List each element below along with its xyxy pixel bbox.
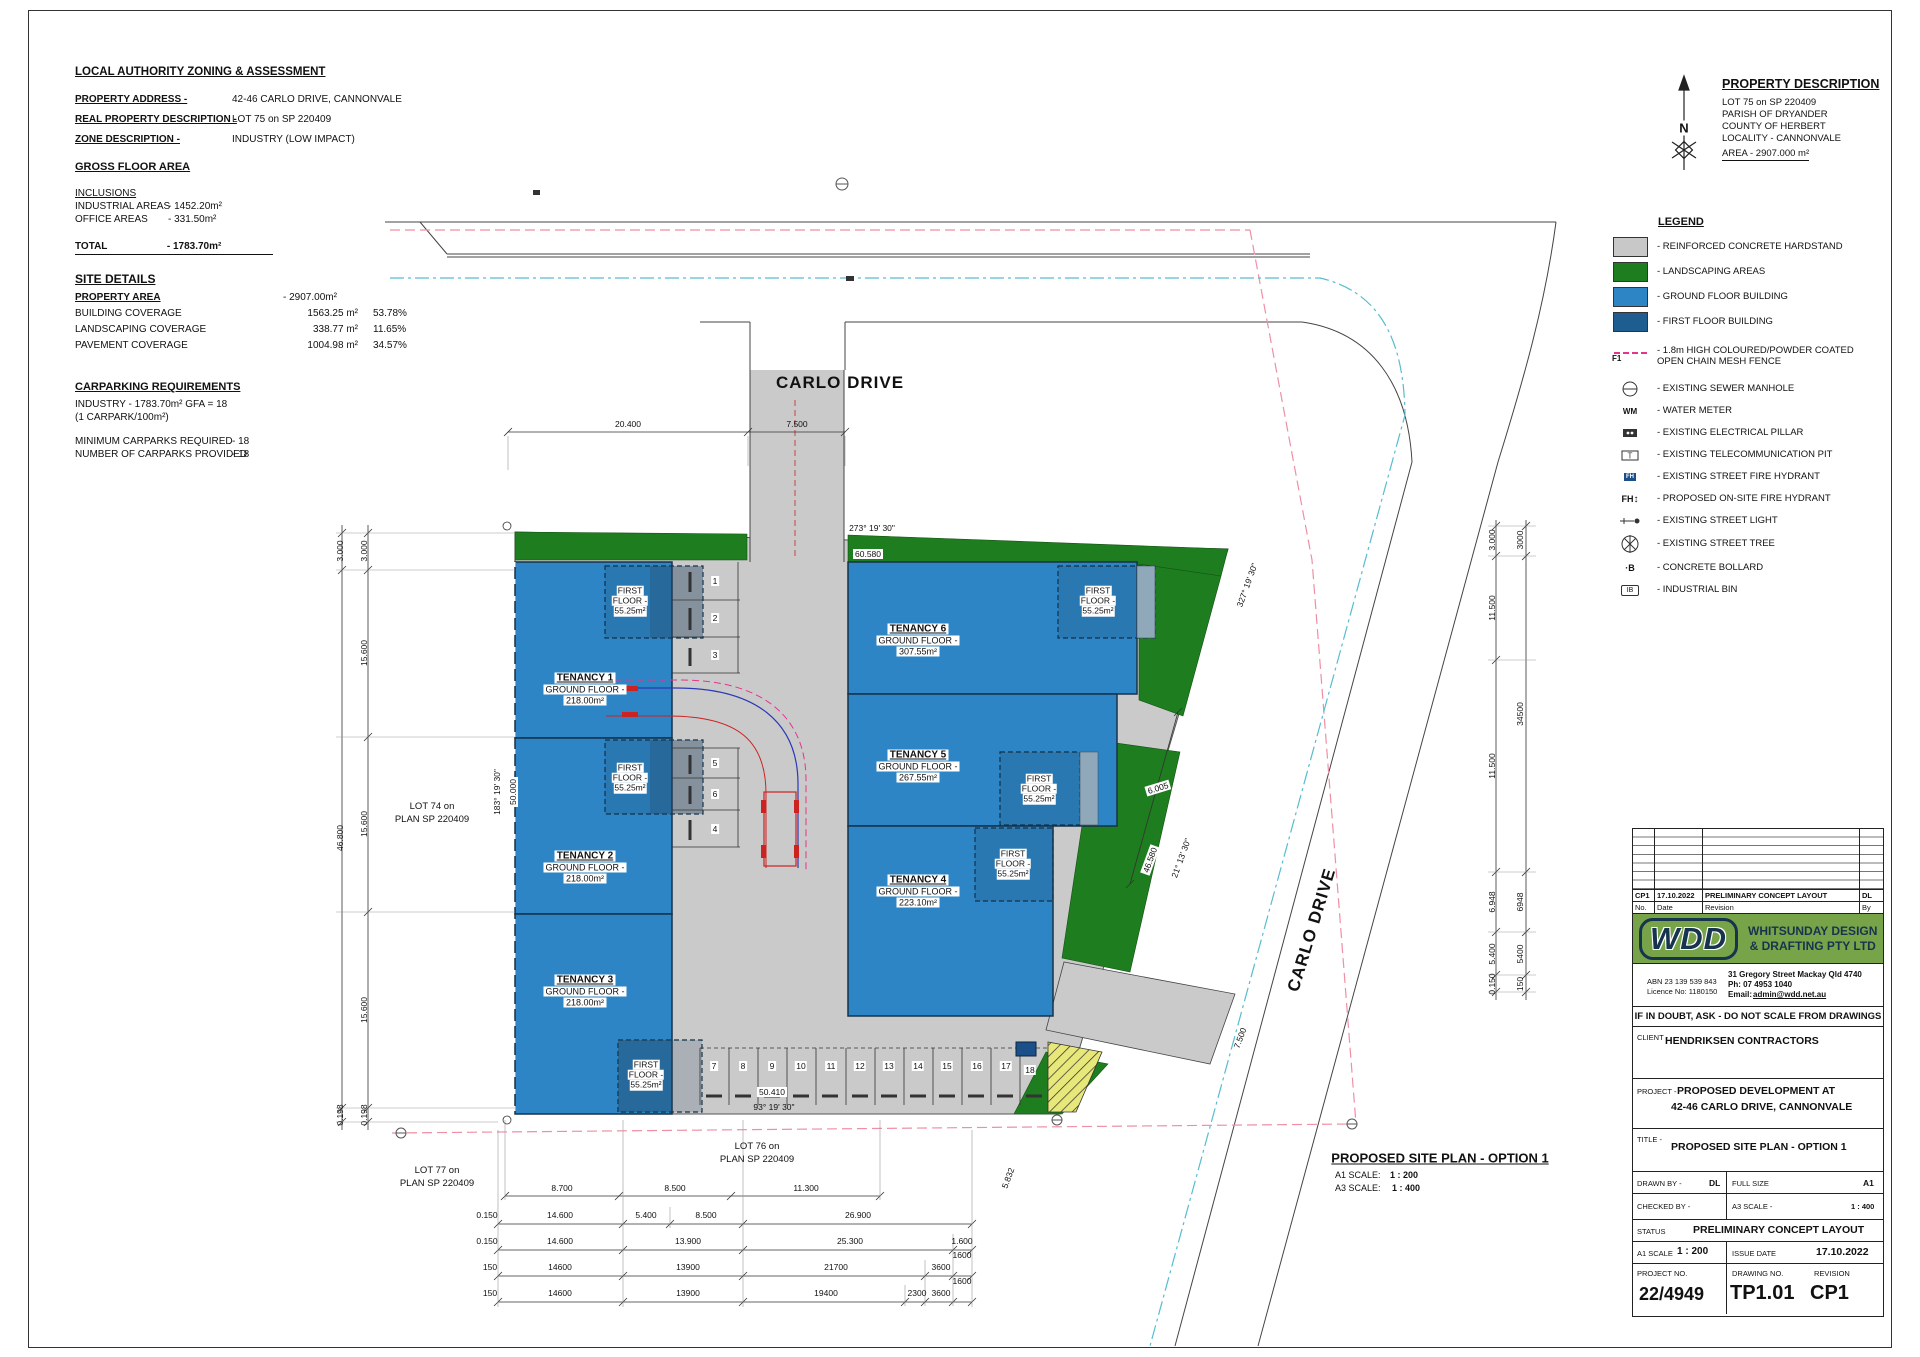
status-label: STATUS	[1637, 1227, 1665, 1236]
drawing-sheet: LOCAL AUTHORITY ZONING & ASSESSMENT PROP…	[0, 0, 1920, 1357]
dim-label: 15.600	[359, 811, 369, 837]
dim-label: 15.600	[359, 997, 369, 1023]
carpark-number: 6	[711, 789, 719, 799]
ff-area: 55.25m²	[1022, 794, 1055, 804]
tenancy-area: 307.55m²	[897, 647, 939, 657]
dim-label: 5.400	[635, 1210, 656, 1220]
pd-title: PROPERTY DESCRIPTION	[1722, 77, 1879, 91]
tenancy-name: TENANCY 6	[888, 624, 949, 635]
pd-line: LOCALITY - CANNONVALE	[1722, 133, 1841, 144]
panel-title: LOCAL AUTHORITY ZONING & ASSESSMENT	[75, 66, 325, 78]
telecommunication-pit-icon: T	[1612, 450, 1648, 461]
legend-item: - EXISTING ELECTRICAL PILLAR	[1612, 422, 1803, 444]
legend-item: IB - INDUSTRIAL BIN	[1612, 579, 1737, 601]
legend-label: - CONCRETE BOLLARD	[1657, 563, 1763, 574]
ff-l2: FLOOR -	[995, 859, 1031, 869]
sd-pct: 34.57%	[373, 340, 407, 351]
dim-label: 1600	[953, 1276, 972, 1286]
client-label: CLIENT -	[1637, 1033, 1668, 1042]
legend-item: FH - EXISTING STREET FIRE HYDRANT	[1612, 466, 1820, 488]
tenancy-4-label: TENANCY 4 GROUND FLOOR - 223.10m²	[876, 875, 959, 908]
legend-item: - EXISTING STREET LIGHT	[1612, 510, 1778, 532]
dim-label: 25.300	[837, 1236, 863, 1246]
rev-no: CP1	[1633, 890, 1654, 901]
wm-glyph: WM	[1623, 407, 1637, 416]
dim-label: 0.198	[335, 1104, 345, 1125]
sd-pct: 53.78%	[373, 308, 407, 319]
tenancy-floor: GROUND FLOOR -	[876, 636, 959, 646]
a1-scale-label: A1 SCALE	[1637, 1249, 1673, 1258]
first-floor-swatch-icon	[1612, 312, 1648, 332]
dim-label: 1600	[953, 1250, 972, 1260]
area-label: PROPERTY AREA	[75, 292, 161, 303]
scale-issue-row: A1 SCALE 1 : 200 ISSUE DATE 17.10.2022	[1633, 1241, 1883, 1263]
accessible-bay-icon	[1016, 1042, 1036, 1056]
lot-line: PLAN SP 220409	[720, 1154, 794, 1167]
bin-glyph: IB	[1621, 585, 1640, 596]
title-label: TITLE -	[1637, 1135, 1662, 1144]
company-details: ABN 23 139 539 843 Licence No: 1180150 3…	[1633, 963, 1883, 1006]
dim-label: 46.800	[335, 825, 345, 851]
pd-line: LOT 75 on SP 220409	[1722, 97, 1816, 108]
carpark-number: 11	[825, 1061, 837, 1071]
licence: Licence No: 1180150	[1647, 987, 1717, 996]
ff-l1: FIRST	[617, 586, 644, 596]
drawn-label: DRAWN BY -	[1637, 1179, 1682, 1188]
sewer-manhole-icon	[1612, 380, 1648, 398]
address: 31 Gregory Street Mackay Qld 4740	[1728, 970, 1862, 979]
row-label: REAL PROPERTY DESCRIPTION -	[75, 114, 237, 125]
rev-h-desc: Revision	[1702, 902, 1859, 913]
first-floor-label: FIRSTFLOOR -55.25m²	[1080, 586, 1116, 617]
dim-label: 0.150	[476, 1210, 497, 1220]
dim-label: 15.600	[359, 640, 369, 666]
carpark-number: 14	[912, 1061, 924, 1071]
dim-label: 6948	[1515, 893, 1525, 912]
carpark-number: 4	[711, 824, 719, 834]
sd-value: 1563.25 m²	[295, 308, 358, 319]
dim-label: 34500	[1515, 702, 1525, 726]
total-label: TOTAL	[75, 241, 107, 252]
dim-label: 3600	[932, 1262, 951, 1272]
landscaping-swatch-icon	[1612, 262, 1648, 282]
project-line1: PROPOSED DEVELOPMENT AT	[1677, 1085, 1835, 1097]
company-line2: & DRAFTING PTY LTD	[1748, 939, 1877, 954]
revision-empty-rows	[1633, 829, 1883, 889]
carpark-number: 15	[941, 1061, 953, 1071]
pd-line: COUNTY OF HERBERT	[1722, 121, 1826, 132]
rev-h-no: No.	[1633, 902, 1654, 913]
title-value: PROPOSED SITE PLAN - OPTION 1	[1671, 1141, 1847, 1153]
industrial-bin-icon: IB	[1612, 585, 1648, 596]
street-light-icon	[1612, 516, 1648, 526]
dim-label: 6.948	[1487, 891, 1497, 912]
phone: Ph: 07 4953 1040	[1728, 980, 1792, 989]
client-row: CLIENT - HENDRIKSEN CONTRACTORS	[1633, 1026, 1883, 1078]
sd-value: 338.77 m²	[295, 324, 358, 335]
lot-line: LOT 77 on	[415, 1165, 460, 1178]
tenancy-floor: GROUND FLOOR -	[876, 762, 959, 772]
issue-label: ISSUE DATE	[1732, 1249, 1776, 1258]
fh2-glyph: FH	[1622, 494, 1634, 504]
svg-text:T: T	[1628, 451, 1633, 460]
sd-label: LANDSCAPING COVERAGE	[75, 324, 206, 335]
first-floor-label: FIRSTFLOOR -55.25m²	[995, 849, 1031, 880]
legend-item: - EXISTING SEWER MANHOLE	[1612, 378, 1794, 400]
pd-area: AREA - 2907.000 m²	[1722, 148, 1809, 161]
dim-label: 11.500	[1487, 595, 1497, 620]
legend-item: - FIRST FLOOR BUILDING	[1612, 311, 1773, 333]
legend-item: - LANDSCAPING AREAS	[1612, 261, 1765, 283]
dim-label: 19400	[814, 1288, 838, 1298]
fh-glyph: FH	[1624, 473, 1636, 481]
revision-header: No. Date Revision By	[1633, 901, 1883, 913]
first-floor-label: FIRSTFLOOR -55.25m²	[1021, 774, 1057, 805]
dim-label: 5.400	[1487, 943, 1497, 964]
a3-scale-label: A3 SCALE -	[1732, 1202, 1772, 1211]
disclaimer-row: IF IN DOUBT, ASK - DO NOT SCALE FROM DRA…	[1633, 1006, 1883, 1026]
tenancy-5-label: TENANCY 5 GROUND FLOOR - 267.55m²	[876, 750, 959, 783]
dim-label: 11.300	[793, 1183, 818, 1193]
issue-value: 17.10.2022	[1816, 1246, 1869, 1258]
tenancy-name: TENANCY 4	[888, 875, 949, 886]
sd-pct: 11.65%	[373, 324, 406, 335]
fullsize-label: FULL SIZE	[1732, 1179, 1769, 1188]
tenancy-floor: GROUND FLOOR -	[543, 685, 626, 695]
carpark-number: 1	[711, 576, 719, 586]
first-floor-label: FIRSTFLOOR -55.25m²	[628, 1060, 664, 1091]
tenancy-area: 218.00m²	[564, 998, 606, 1008]
boundary-length-bottom: 50.410	[757, 1087, 787, 1097]
sd-label: BUILDING COVERAGE	[75, 308, 182, 319]
dim-label: 3.000	[359, 540, 369, 561]
dim-label: 150	[483, 1262, 497, 1272]
abn: ABN 23 139 539 843	[1647, 977, 1717, 986]
row-label: ZONE DESCRIPTION -	[75, 134, 180, 145]
status-row: STATUS PRELIMINARY CONCEPT LAYOUT	[1633, 1219, 1883, 1241]
row-label: PROPERTY ADDRESS -	[75, 94, 187, 105]
cp-line: INDUSTRY - 1783.70m² GFA = 18	[75, 399, 227, 410]
legend-label: - REINFORCED CONCRETE HARDSTAND	[1657, 242, 1843, 253]
project-label: PROJECT -	[1637, 1087, 1676, 1096]
company-banner: WDD WHITSUNDAY DESIGN & DRAFTING PTY LTD	[1633, 913, 1883, 963]
dim-label: 3.000	[1487, 529, 1497, 550]
drawn-row: DRAWN BY - DL FULL SIZE A1	[1633, 1171, 1883, 1193]
ff-l1: FIRST	[1026, 774, 1053, 784]
tenancy-area: 218.00m²	[564, 696, 606, 706]
ff-l1: FIRST	[617, 763, 644, 773]
lot-77-label: LOT 77 onPLAN SP 220409	[400, 1165, 474, 1191]
dim-label: 3.000	[335, 540, 345, 561]
email: admin@wdd.net.au	[1753, 990, 1826, 999]
carpark-number: 3	[711, 650, 719, 660]
ff-l1: FIRST	[1000, 849, 1027, 859]
gfa-title: GROSS FLOOR AREA	[75, 161, 190, 173]
company-line1: WHITSUNDAY DESIGN	[1748, 924, 1877, 939]
legend-label: - EXISTING ELECTRICAL PILLAR	[1657, 428, 1803, 439]
gfa-value: - 331.50m²	[168, 214, 216, 225]
ground-floor-swatch-icon	[1612, 287, 1648, 307]
lot-line: PLAN SP 220409	[395, 814, 469, 827]
carparking-title: CARPARKING REQUIREMENTS	[75, 381, 240, 393]
dim-label: 13.900	[675, 1236, 701, 1246]
ff-l2: FLOOR -	[612, 773, 648, 783]
dwgno-label: DRAWING NO.	[1732, 1269, 1783, 1278]
ff-area: 55.25m²	[629, 1080, 662, 1090]
legend-label: - GROUND FLOOR BUILDING	[1657, 292, 1788, 303]
ff-area: 55.25m²	[613, 783, 646, 793]
first-floor-label: FIRSTFLOOR -55.25m²	[612, 763, 648, 794]
legend-item: - GROUND FLOOR BUILDING	[1612, 286, 1788, 308]
bollard-glyph: ·B	[1625, 563, 1635, 573]
street-tree-icon	[1612, 534, 1648, 554]
carpark-number: 12	[854, 1061, 866, 1071]
lot-line: PLAN SP 220409	[400, 1178, 474, 1191]
row-value: LOT 75 on SP 220409	[232, 114, 331, 125]
onsite-fire-hydrant-icon: FH↕	[1612, 494, 1648, 505]
legend-item: F1 - 1.8m HIGH COLOURED/POWDER COATED OP…	[1612, 342, 1882, 372]
tenancy-name: TENANCY 2	[555, 851, 616, 862]
sd-label: PAVEMENT COVERAGE	[75, 340, 188, 351]
carpark-number: 2	[711, 613, 719, 623]
tenancy-6-label: TENANCY 6 GROUND FLOOR - 307.55m²	[876, 624, 959, 657]
carpark-number: 9	[768, 1061, 776, 1071]
tenancy-floor: GROUND FLOOR -	[543, 863, 626, 873]
rev-value: CP1	[1810, 1282, 1849, 1305]
legend-label: - EXISTING TELECOMMUNICATION PIT	[1657, 450, 1832, 461]
caption-a1-value: 1 : 200	[1390, 1170, 1418, 1180]
legend-label: - EXISTING STREET LIGHT	[1657, 516, 1778, 527]
legend-label: - EXISTING SEWER MANHOLE	[1657, 384, 1794, 395]
legend-label: - PROPOSED ON-SITE FIRE HYDRANT	[1657, 494, 1831, 505]
legend-panel: LEGEND - REINFORCED CONCRETE HARDSTAND -…	[1612, 212, 1888, 604]
carpark-number: 5	[711, 758, 719, 768]
dim-label: 8.700	[551, 1183, 572, 1193]
checked-row: CHECKED BY - A3 SCALE - 1 : 400	[1633, 1193, 1883, 1219]
gfa-label: OFFICE AREAS	[75, 214, 148, 225]
fullsize-value: A1	[1863, 1178, 1874, 1188]
total-value: - 1783.70m²	[167, 241, 221, 252]
company-name: WHITSUNDAY DESIGN & DRAFTING PTY LTD	[1748, 924, 1877, 954]
rev-label: REVISION	[1814, 1269, 1850, 1278]
dim-label: 3000	[1515, 531, 1525, 550]
tenancy-name: TENANCY 1	[555, 673, 616, 684]
legend-item: WM - WATER METER	[1612, 400, 1732, 422]
plan-caption-title: PROPOSED SITE PLAN - OPTION 1	[1331, 1151, 1548, 1166]
ff-l1: FIRST	[1085, 586, 1112, 596]
carpark-number: 16	[971, 1061, 983, 1071]
row-value: 42-46 CARLO DRIVE, CANNONVALE	[232, 94, 402, 105]
first-floor-label: FIRSTFLOOR -55.25m²	[612, 586, 648, 617]
dim-label: 21700	[824, 1262, 848, 1272]
disclaimer: IF IN DOUBT, ASK - DO NOT SCALE FROM DRA…	[1635, 1011, 1882, 1022]
legend-label: - FIRST FLOOR BUILDING	[1657, 317, 1773, 328]
legend-label: - INDUSTRIAL BIN	[1657, 585, 1737, 596]
dwgno-value: TP1.01	[1730, 1282, 1794, 1305]
dim-label: 8.500	[695, 1210, 716, 1220]
tenancy-3-label: TENANCY 3 GROUND FLOOR - 218.00m²	[543, 975, 626, 1008]
bearing-left: 183° 19' 30"	[492, 769, 502, 815]
caption-a1-label: A1 SCALE:	[1335, 1170, 1381, 1180]
dim-label: 14.600	[547, 1210, 573, 1220]
rev-by: DL	[1859, 890, 1883, 901]
checked-label: CHECKED BY -	[1637, 1202, 1690, 1211]
road-name-top: CARLO DRIVE	[776, 373, 904, 393]
pd-line: PARISH OF DRYANDER	[1722, 109, 1828, 120]
tenancy-name: TENANCY 5	[888, 750, 949, 761]
electrical-pillar-icon	[1612, 428, 1648, 438]
bearing-bottom: 93° 19' 30"	[753, 1102, 794, 1112]
ff-area: 55.25m²	[996, 869, 1029, 879]
ff-l2: FLOOR -	[628, 1070, 664, 1080]
client-value: HENDRIKSEN CONTRACTORS	[1665, 1035, 1819, 1047]
dim-label: 13900	[676, 1262, 700, 1272]
status-value: PRELIMINARY CONCEPT LAYOUT	[1693, 1224, 1864, 1236]
cp-value: - 18	[232, 436, 249, 447]
street-fire-hydrant-icon: FH	[1612, 473, 1648, 481]
dim-label: 14.600	[547, 1236, 573, 1246]
projno-value: 22/4949	[1639, 1284, 1704, 1305]
a3-scale-value: 1 : 400	[1851, 1202, 1874, 1211]
cp-line: (1 CARPARK/100m²)	[75, 412, 169, 423]
dim-label: 0.198	[359, 1104, 369, 1125]
dim-label: 0.150	[476, 1236, 497, 1246]
boundary-length-left: 50.000	[508, 777, 518, 807]
legend-item: - REINFORCED CONCRETE HARDSTAND	[1612, 236, 1843, 258]
dim-label: 3600	[932, 1288, 951, 1298]
hardstand-swatch-icon	[1612, 237, 1648, 257]
concrete-bollard-icon: ·B	[1612, 563, 1648, 573]
legend-label: - LANDSCAPING AREAS	[1657, 267, 1765, 278]
project-line2: 42-46 CARLO DRIVE, CANNONVALE	[1671, 1101, 1852, 1113]
row-value: INDUSTRY (LOW IMPACT)	[232, 134, 355, 145]
rev-date: 17.10.2022	[1654, 890, 1702, 901]
ff-l2: FLOOR -	[1080, 596, 1116, 606]
carpark-number: 10	[795, 1061, 807, 1071]
dim-label: 7.500	[786, 419, 807, 429]
cp-value: - 18	[232, 449, 249, 460]
rev-h-by: By	[1859, 902, 1883, 913]
gfa-value: - 1452.20m²	[168, 201, 222, 212]
dim-label: 14600	[548, 1288, 572, 1298]
fence-glyph: F1	[1612, 354, 1621, 363]
cp-label: MINIMUM CARPARKS REQUIRED	[75, 436, 233, 447]
ff-area: 55.25m²	[613, 606, 646, 616]
project-number-row: PROJECT NO. 22/4949 DRAWING NO. REVISION…	[1633, 1263, 1883, 1314]
projno-label: PROJECT NO.	[1637, 1269, 1687, 1278]
sd-value: 1004.98 m²	[295, 340, 358, 351]
lot-line: LOT 76 on	[735, 1141, 780, 1154]
legend-item: ·B - CONCRETE BOLLARD	[1612, 557, 1763, 579]
dim-label: 150	[483, 1288, 497, 1298]
title-block: CP1 17.10.2022 PRELIMINARY CONCEPT LAYOU…	[1632, 828, 1884, 1317]
legend-label: - EXISTING STREET FIRE HYDRANT	[1657, 472, 1820, 483]
inclusions-label: INCLUSIONS	[75, 188, 136, 199]
carpark-number: 17	[1000, 1061, 1012, 1071]
rev-h-date: Date	[1654, 902, 1702, 913]
bearing-top: 273° 19' 30"	[849, 523, 895, 533]
lot-76-label: LOT 76 onPLAN SP 220409	[720, 1141, 794, 1167]
rev-desc: PRELIMINARY CONCEPT LAYOUT	[1702, 890, 1859, 901]
tenancy-area: 267.55m²	[897, 773, 939, 783]
revision-row: CP1 17.10.2022 PRELIMINARY CONCEPT LAYOU…	[1633, 889, 1883, 901]
dim-label: 26.900	[845, 1210, 871, 1220]
ff-l2: FLOOR -	[612, 596, 648, 606]
legend-label: - EXISTING STREET TREE	[1657, 539, 1775, 550]
tenancy-area: 218.00m²	[564, 874, 606, 884]
dim-label: 11.500	[1487, 753, 1497, 778]
title-row: TITLE - PROPOSED SITE PLAN - OPTION 1	[1633, 1128, 1883, 1171]
boundary-length-top: 60.580	[853, 549, 883, 559]
caption-a3-value: 1 : 400	[1392, 1183, 1420, 1193]
water-meter-icon: WM	[1612, 407, 1648, 416]
tenancy-floor: GROUND FLOOR -	[543, 987, 626, 997]
dim-label: 2300	[908, 1288, 927, 1298]
area-value: - 2907.00m²	[283, 292, 337, 303]
carpark-number: 7	[710, 1061, 718, 1071]
dim-label: 5400	[1515, 945, 1525, 964]
legend-item: T - EXISTING TELECOMMUNICATION PIT	[1612, 444, 1832, 466]
legend-label: - WATER METER	[1657, 406, 1732, 417]
legend-label: - 1.8m HIGH COLOURED/POWDER COATED OPEN …	[1657, 346, 1882, 368]
dim-label: 150	[1515, 977, 1525, 991]
caption-a3-label: A3 SCALE:	[1335, 1183, 1381, 1193]
tenancy-1-label: TENANCY 1 GROUND FLOOR - 218.00m²	[543, 673, 626, 706]
tenancy-name: TENANCY 3	[555, 975, 616, 986]
dim-label: 14600	[548, 1262, 572, 1272]
dim-label: 13900	[676, 1288, 700, 1298]
legend-item: - EXISTING STREET TREE	[1612, 533, 1775, 555]
tenancy-area: 223.10m²	[897, 898, 939, 908]
wdd-logo: WDD	[1639, 918, 1738, 960]
project-row: PROJECT - PROPOSED DEVELOPMENT AT 42-46 …	[1633, 1078, 1883, 1128]
legend-title: LEGEND	[1658, 216, 1704, 228]
dim-label: 1.600	[951, 1236, 972, 1246]
lot-74-label: LOT 74 onPLAN SP 220409	[395, 801, 469, 827]
ff-l1: FIRST	[633, 1060, 660, 1070]
tenancy-floor: GROUND FLOOR -	[876, 887, 959, 897]
carpark-number: 18	[1024, 1065, 1036, 1075]
north-label: N	[1678, 121, 1689, 136]
cp-label: NUMBER OF CARPARKS PROVIDED	[75, 449, 247, 460]
drawn-value: DL	[1709, 1178, 1720, 1188]
carpark-number: 8	[739, 1061, 747, 1071]
dim-label: 8.500	[664, 1183, 685, 1193]
gfa-label: INDUSTRIAL AREAS	[75, 201, 170, 212]
dim-label: 20.400	[615, 419, 641, 429]
ff-l2: FLOOR -	[1021, 784, 1057, 794]
email-label: Email:	[1728, 990, 1752, 999]
carpark-number: 13	[883, 1061, 895, 1071]
ff-area: 55.25m²	[1081, 606, 1114, 616]
dim-label: 0.150	[1487, 973, 1497, 994]
a1-scale-value: 1 : 200	[1677, 1246, 1708, 1257]
fence-line-icon: F1	[1612, 352, 1648, 363]
lot-line: LOT 74 on	[410, 801, 455, 814]
legend-item: FH↕ - PROPOSED ON-SITE FIRE HYDRANT	[1612, 488, 1831, 510]
tenancy-2-label: TENANCY 2 GROUND FLOOR - 218.00m²	[543, 851, 626, 884]
site-details-title: SITE DETAILS	[75, 272, 155, 286]
